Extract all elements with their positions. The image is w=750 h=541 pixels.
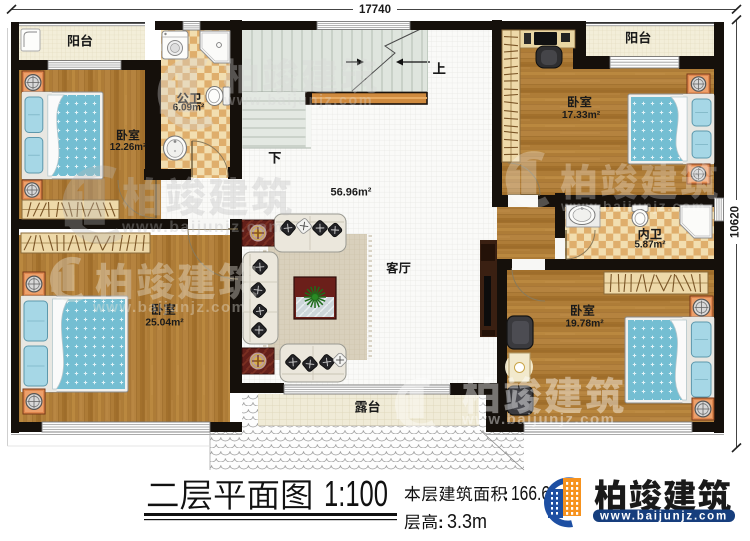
svg-text:3.3m: 3.3m	[447, 511, 487, 533]
svg-text:17740: 17740	[359, 4, 391, 16]
svg-text:5.87m²: 5.87m²	[634, 240, 666, 251]
svg-text:www.baijunjz.com: www.baijunjz.com	[560, 198, 706, 214]
svg-text:www.baijunjz.com: www.baijunjz.com	[599, 511, 728, 523]
svg-text:www.baijunjz.com: www.baijunjz.com	[92, 299, 246, 316]
svg-text::: :	[503, 485, 509, 504]
svg-text:12.26m²: 12.26m²	[110, 142, 147, 153]
svg-text:1:100: 1:100	[324, 473, 388, 514]
svg-text:19.78m²: 19.78m²	[565, 319, 604, 330]
svg-text:www.baijunjz.com: www.baijunjz.com	[121, 219, 284, 236]
svg-text::: :	[438, 513, 444, 532]
svg-text:17.33m²: 17.33m²	[562, 110, 601, 121]
svg-text:25.04m²: 25.04m²	[145, 318, 184, 329]
svg-text:www.baijunjz.com: www.baijunjz.com	[461, 411, 615, 428]
svg-text:10620: 10620	[730, 206, 742, 238]
svg-text:56.96m²: 56.96m²	[331, 187, 372, 199]
svg-text:www.baijunjz.com: www.baijunjz.com	[223, 93, 373, 109]
